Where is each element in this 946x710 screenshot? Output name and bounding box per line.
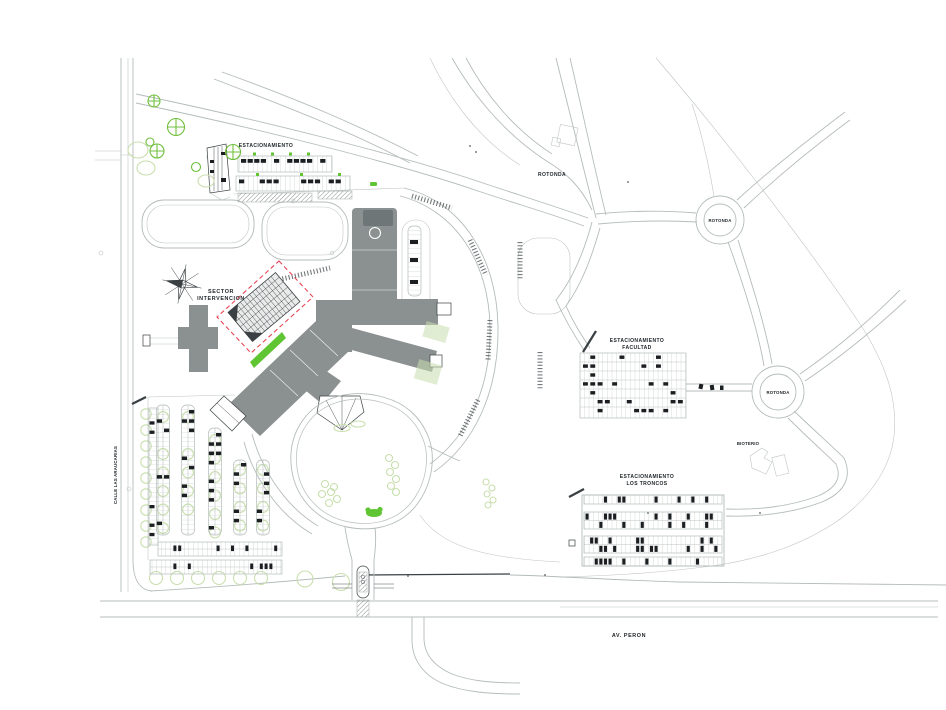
label-rotonda-1: ROTONDA — [708, 218, 731, 223]
parking-los-troncos — [569, 489, 724, 566]
label-rotonda-plain: ROTONDA — [538, 172, 566, 178]
label-est-troncos-1: ESTACIONAMIENTO — [620, 474, 674, 480]
label-calle-las-araucarias: CALLE LAS ARAUCARIAS — [113, 446, 118, 504]
label-sector: SECTOR — [208, 289, 234, 295]
parking-estacionamiento-top — [207, 144, 352, 202]
site-plan-sheet: ESTACIONAMIENTO SECTOR INTERVENCION ROTO… — [0, 0, 946, 710]
label-av-peron: AV. PERON — [612, 633, 646, 639]
label-est-facultad-2: FACULTAD — [622, 345, 651, 351]
label-est-troncos-2: LOS TRONCOS — [626, 481, 667, 487]
access-car-marks — [698, 384, 723, 391]
label-estacionamiento-top: ESTACIONAMIENTO — [239, 143, 293, 149]
parking-facultad — [580, 331, 724, 418]
annex-cross-building — [143, 305, 218, 372]
label-rotonda-2: ROTONDA — [766, 390, 789, 395]
site-plan-drawing: ESTACIONAMIENTO SECTOR INTERVENCION ROTO… — [0, 0, 946, 710]
label-bioterio: BIOTERIO — [737, 441, 760, 446]
intervention-building — [228, 273, 300, 342]
label-est-facultad-1: ESTACIONAMIENTO — [610, 338, 664, 344]
label-intervencion: INTERVENCION — [197, 296, 245, 302]
